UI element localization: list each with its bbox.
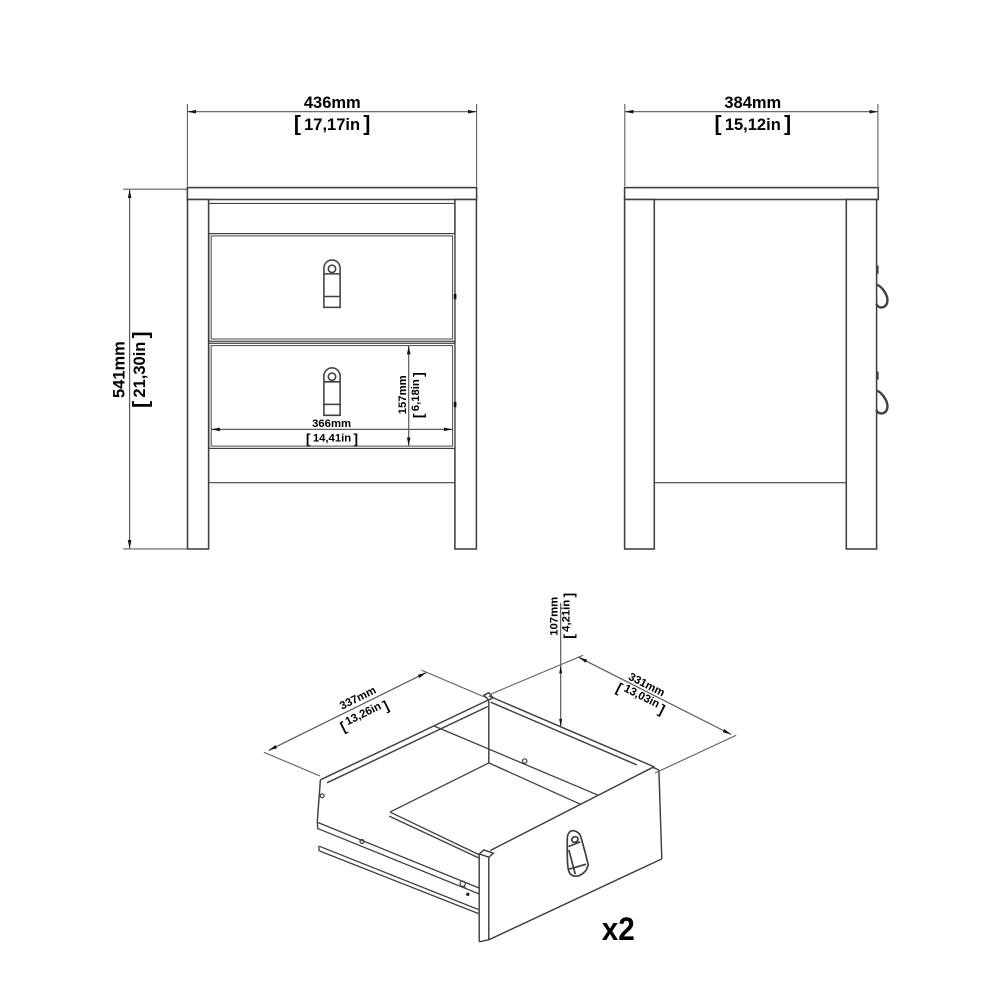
svg-text:107mm: 107mm (548, 597, 560, 636)
svg-text:[ 14,41in ]: [ 14,41in ] (306, 431, 358, 447)
svg-text:384mm: 384mm (724, 94, 781, 112)
svg-text:436mm: 436mm (304, 94, 361, 112)
svg-text:541mm: 541mm (111, 341, 129, 398)
svg-text:[ 15,12in ]: [ 15,12in ] (715, 113, 792, 136)
svg-text:x2: x2 (602, 911, 635, 947)
svg-text:157mm: 157mm (397, 375, 409, 414)
svg-text:[ 21,30in ]: [ 21,30in ] (129, 331, 152, 408)
svg-text:366mm: 366mm (312, 418, 351, 430)
svg-text:[ 17,17in ]: [ 17,17in ] (294, 113, 371, 136)
